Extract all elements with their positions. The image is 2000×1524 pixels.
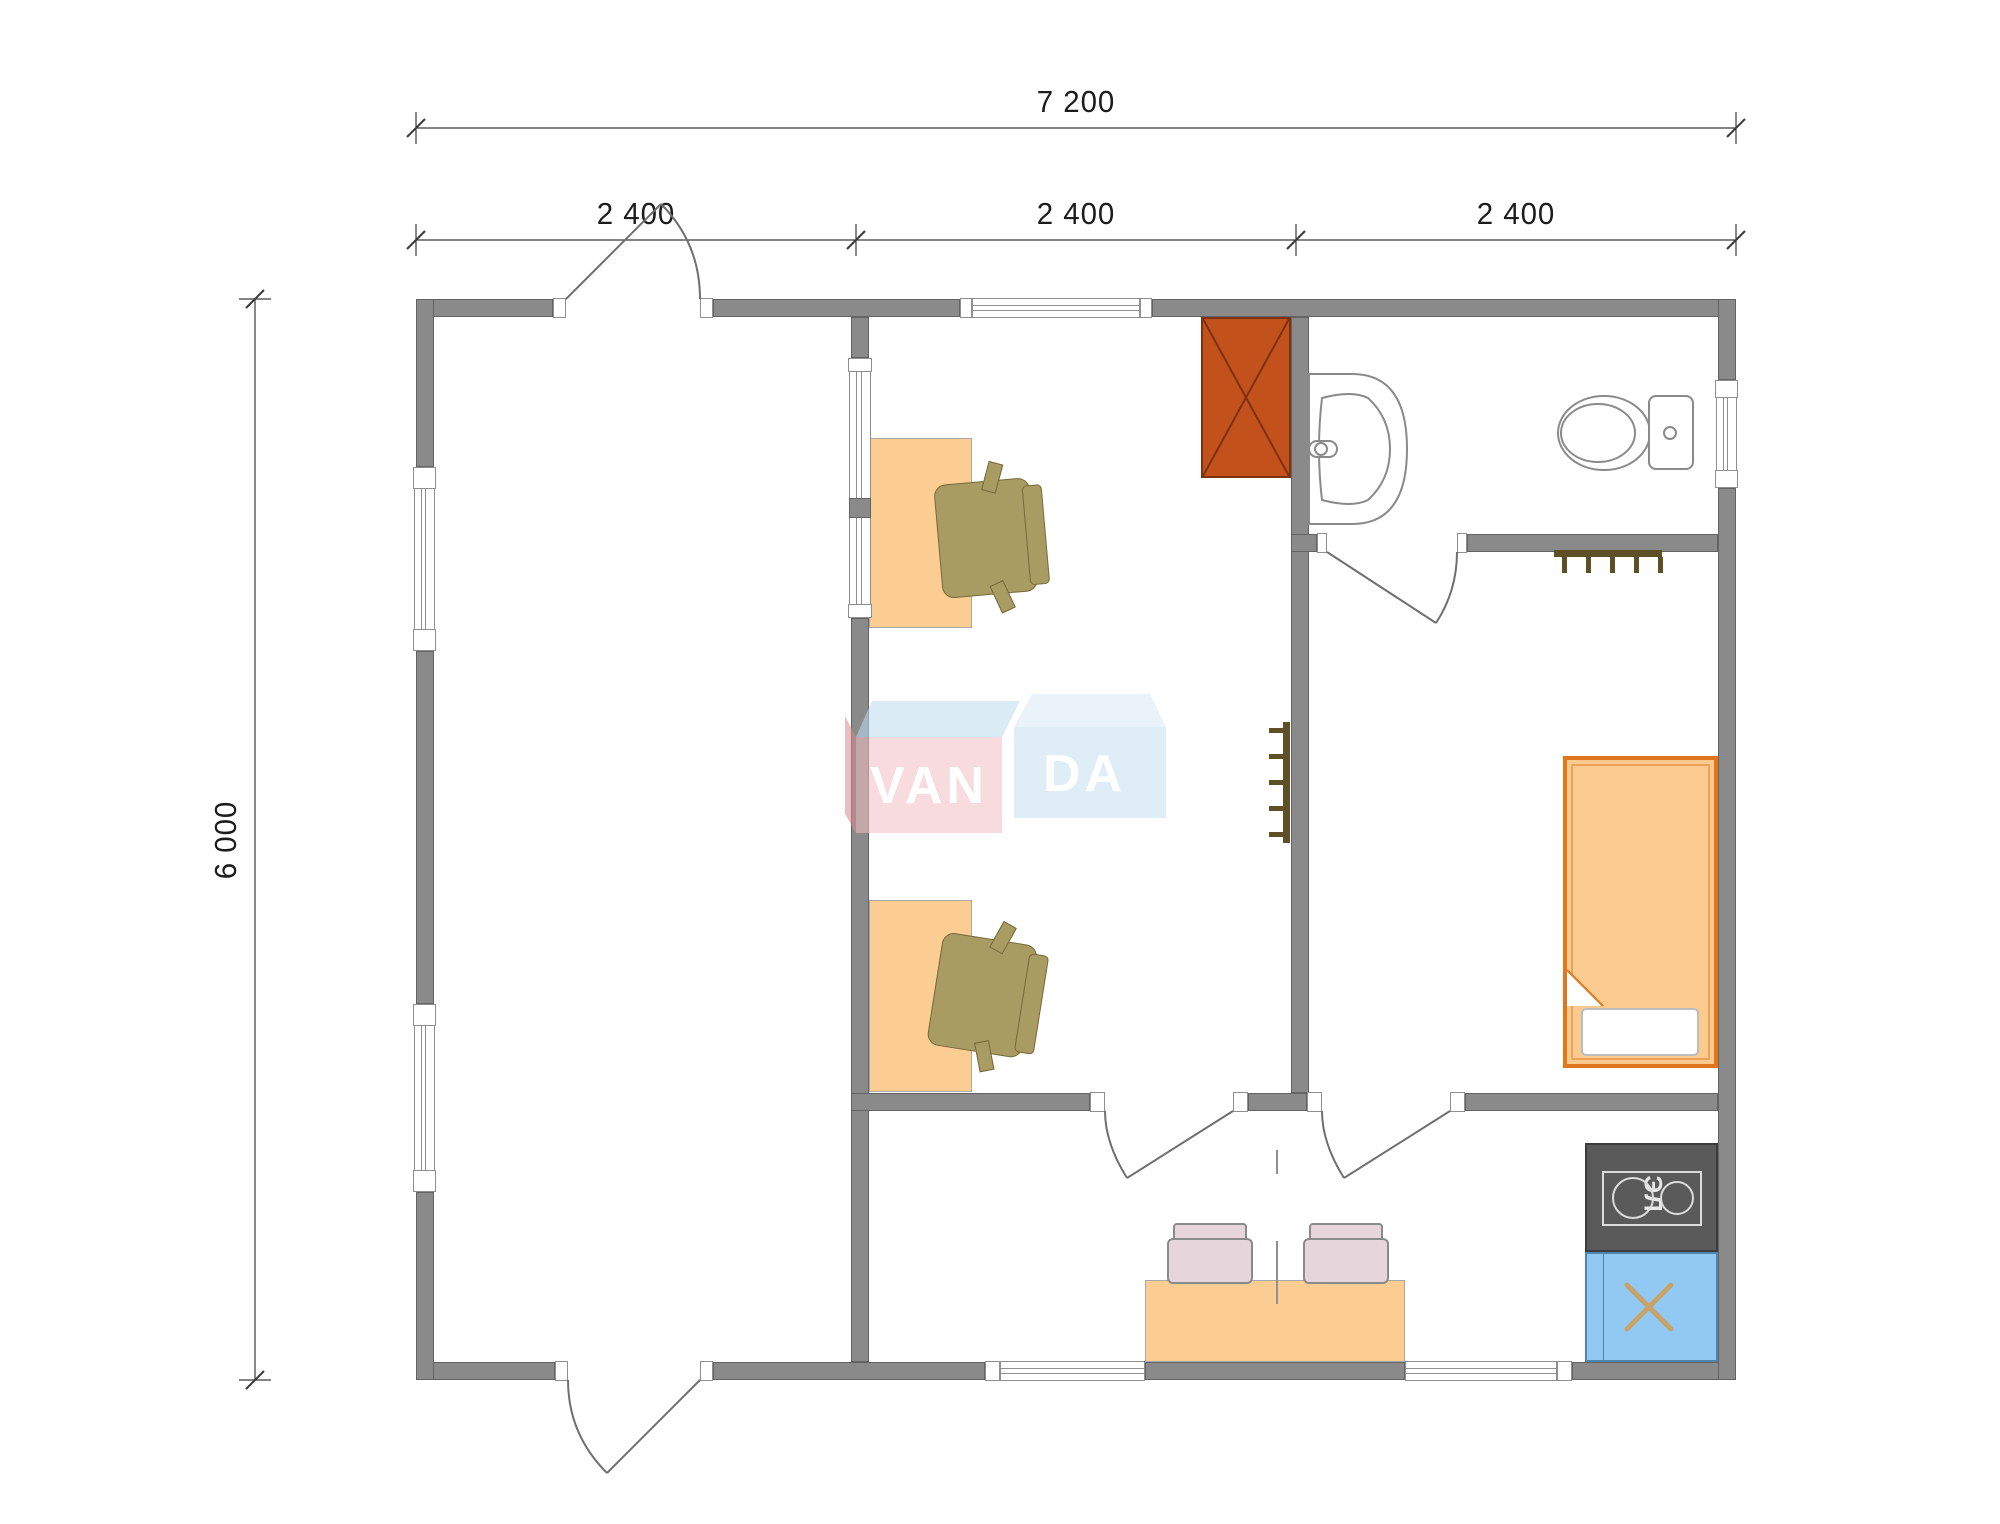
door-jamb — [1307, 1092, 1322, 1112]
logo-left-top — [856, 701, 1020, 737]
window-sill — [848, 358, 872, 372]
pillow — [1581, 1008, 1699, 1056]
window-sill — [1715, 380, 1738, 398]
sink-icon — [1309, 374, 1407, 524]
door-jamb — [1317, 533, 1327, 553]
wall-top-segment — [1152, 299, 1736, 317]
door-jamb — [1457, 533, 1467, 553]
wall-left-segment — [416, 651, 434, 1004]
bed-icon — [1563, 756, 1718, 1068]
door-entrance-bottom — [568, 1380, 700, 1473]
axis-line — [1276, 1241, 1278, 1304]
window-porch-upper — [414, 467, 435, 651]
wardrobe-icon — [1201, 317, 1291, 478]
window-jamb — [1140, 298, 1152, 318]
axis-line — [1276, 1150, 1278, 1174]
door-jamb — [700, 298, 713, 318]
wall-hallway-segment — [1248, 1093, 1307, 1111]
door-jamb — [1090, 1092, 1105, 1112]
door-office — [1105, 1111, 1233, 1178]
dim-overall-width: 7 200 — [1037, 84, 1115, 120]
wall-hallway-segment — [1465, 1093, 1718, 1111]
dim-module-2: 2 400 — [1037, 196, 1115, 232]
office-chair-2-icon — [924, 919, 1064, 1076]
dining-chair-1-icon — [1167, 1223, 1253, 1285]
door-jamb — [555, 1361, 568, 1381]
wall-porch-office-segment — [851, 317, 869, 358]
dim-module-3: 2 400 — [1477, 196, 1555, 232]
dim-overall-depth: 6 000 — [208, 801, 244, 879]
wall-right-segment — [1718, 488, 1736, 1380]
wall-porch-office-segment — [851, 618, 869, 1362]
door-jamb — [553, 298, 566, 318]
window-sill — [413, 1004, 436, 1026]
logo-right-box — [1014, 727, 1166, 818]
window-sill — [413, 467, 436, 489]
floor-plan: 7 200 2 400 2 400 2 400 6 000 — [0, 0, 2000, 1524]
dining-chair-2-icon — [1303, 1223, 1389, 1285]
window-office — [972, 298, 1140, 318]
logo-text-left: VAN — [870, 756, 988, 816]
door-jamb — [700, 1361, 713, 1381]
wall-right-segment — [1718, 299, 1736, 380]
window-sill — [413, 1170, 436, 1192]
dim-module-1: 2 400 — [597, 196, 675, 232]
wall-left-segment — [416, 1192, 434, 1380]
window-jamb — [960, 298, 972, 318]
wall-bottom-segment — [1145, 1362, 1405, 1380]
wall-hallway-segment — [851, 1093, 1090, 1111]
wall-bottom-segment — [713, 1362, 985, 1380]
toilet-icon — [1558, 396, 1693, 470]
wall-bottom-segment — [1572, 1362, 1736, 1380]
logo-right-top — [1014, 694, 1166, 727]
window-interior — [849, 358, 871, 618]
window-hall-left — [1000, 1361, 1145, 1381]
dining-table — [1145, 1280, 1405, 1362]
window-sill — [1715, 470, 1738, 488]
door-jamb — [1450, 1092, 1465, 1112]
window-porch-lower — [414, 1004, 435, 1192]
wall-top-segment — [416, 299, 553, 317]
window-sill — [848, 604, 872, 618]
door-bathroom — [1327, 552, 1457, 623]
wall-left-segment — [416, 299, 434, 467]
stove-label: ЭЛ — [1638, 1173, 1667, 1217]
radiator-bar-bedroom — [1554, 550, 1662, 557]
office-chair-1-icon — [932, 463, 1064, 613]
window-sill — [413, 629, 436, 651]
door-bedroom — [1322, 1111, 1450, 1178]
window-mullion — [849, 498, 871, 518]
window-jamb — [985, 1361, 1000, 1381]
logo-left-box — [856, 737, 1002, 833]
logo-text-right: DA — [1043, 744, 1126, 804]
window-hall-right — [1405, 1361, 1557, 1381]
kitchen-sink-counter-icon — [1585, 1252, 1718, 1362]
radiator-bar-office — [1283, 722, 1290, 843]
door-jamb — [1233, 1092, 1248, 1112]
wall-top-segment — [713, 299, 960, 317]
window-jamb — [1557, 1361, 1572, 1381]
wall-office-bedroom — [1291, 317, 1309, 1093]
wall-bathroom-segment — [1291, 534, 1317, 552]
wall-bottom-segment — [416, 1362, 555, 1380]
